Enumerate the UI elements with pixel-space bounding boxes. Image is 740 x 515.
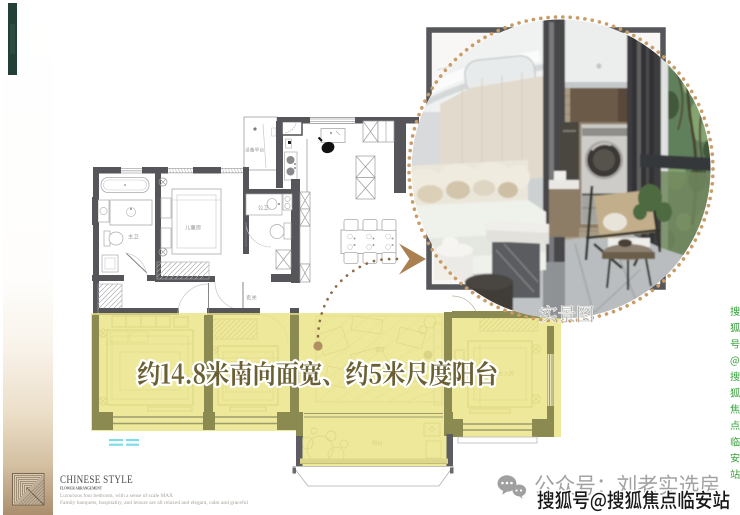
svg-text:Family banquets, hospitality,: Family banquets, hospitality, and leisur… [60, 499, 248, 506]
svg-text:Luxurious four bedroom, with a: Luxurious four bedroom, with a sense of … [60, 492, 173, 499]
svg-text:CHINESE STYLE: CHINESE STYLE [60, 474, 133, 486]
svg-text:FLOWER ARRANGEMENT: FLOWER ARRANGEMENT [60, 486, 102, 491]
